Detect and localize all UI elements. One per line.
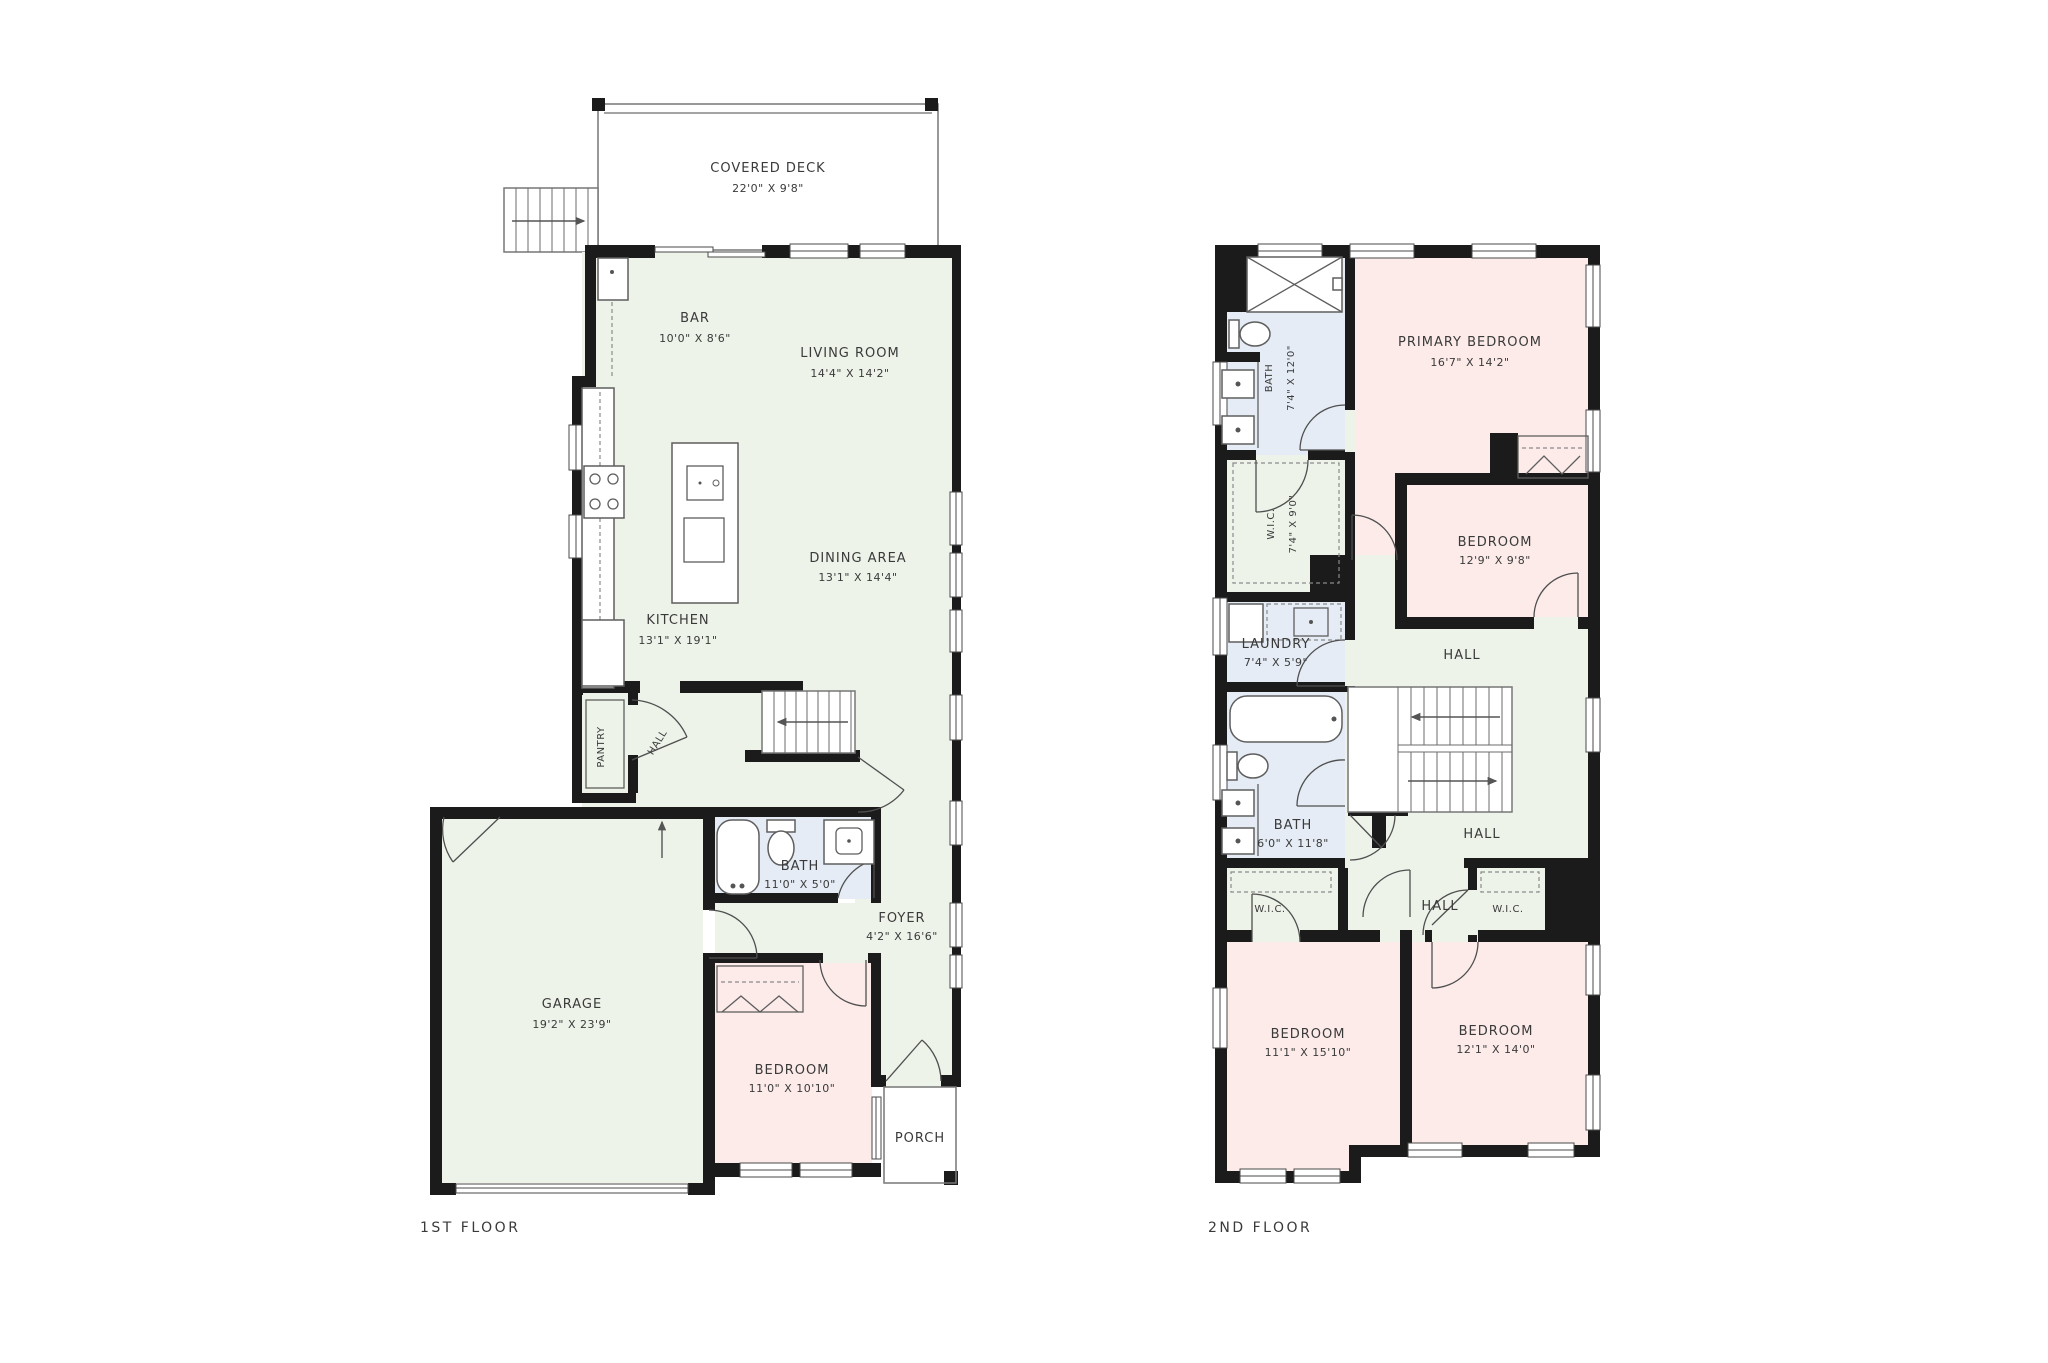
kitchen-dims: 13'1" X 19'1" xyxy=(638,634,717,647)
second-floor-plan: BATH 7'4" X 12'0" PRIMARY BEDROOM 16'7" … xyxy=(1208,244,1600,1236)
first-floor-plan: COVERED DECK 22'0" X 9'8" BAR 10'0" X 8'… xyxy=(420,98,962,1236)
bedroom3-label: BEDROOM xyxy=(1271,1027,1346,1042)
bedroom4-dims: 12'1" X 14'0" xyxy=(1456,1043,1535,1056)
first-floor-room-fills xyxy=(442,252,961,1183)
bedroom3-dims: 11'1" X 15'10" xyxy=(1265,1046,1352,1059)
bedroom2-dims: 12'9" X 9'8" xyxy=(1459,554,1531,567)
floorplan-canvas: COVERED DECK 22'0" X 9'8" BAR 10'0" X 8'… xyxy=(0,0,2048,1363)
bar-label: BAR xyxy=(680,311,710,326)
bar-dims: 10'0" X 8'6" xyxy=(659,332,731,345)
bedroom1-label: BEDROOM xyxy=(755,1063,830,1078)
hall-bath-dims: 6'0" X 11'8" xyxy=(1257,837,1329,850)
foyer-label: FOYER xyxy=(878,911,925,926)
pantry-label: PANTRY xyxy=(596,726,607,768)
bedroom4-label: BEDROOM xyxy=(1459,1024,1534,1039)
primary-bedroom-label: PRIMARY BEDROOM xyxy=(1398,335,1542,350)
laundry-label: LAUNDRY xyxy=(1242,637,1311,652)
hall-bottom-label: HALL xyxy=(1421,899,1458,914)
first-floor-caption: 1ST FLOOR xyxy=(420,1220,520,1236)
shower-icon xyxy=(1247,257,1342,312)
wic-left-label: W.I.C. xyxy=(1254,904,1285,915)
wic-right-label: W.I.C. xyxy=(1492,904,1523,915)
kitchen-label: KITCHEN xyxy=(646,613,709,628)
living-room-label: LIVING ROOM xyxy=(800,346,899,361)
porch-label: PORCH xyxy=(895,1131,945,1146)
bedroom1-dims: 11'0" X 10'10" xyxy=(749,1082,836,1095)
laundry-dims: 7'4" X 5'9" xyxy=(1244,656,1308,669)
kitchen-island xyxy=(672,443,738,603)
bedroom2-label: BEDROOM xyxy=(1458,535,1533,550)
living-room-dims: 14'4" X 14'2" xyxy=(810,367,889,380)
dining-area-label: DINING AREA xyxy=(809,551,906,566)
primary-bath-label: BATH xyxy=(1264,364,1275,393)
foyer-dims: 4'2" X 16'6" xyxy=(866,930,938,943)
wic-primary-label: W.I.C. xyxy=(1266,508,1277,539)
first-floor-stairs xyxy=(762,691,855,753)
covered-deck-label: COVERED DECK xyxy=(710,161,825,176)
hall-upper-label: HALL xyxy=(1443,648,1480,663)
covered-deck-dims: 22'0" X 9'8" xyxy=(732,182,804,195)
bath-label: BATH xyxy=(781,859,820,874)
primary-bedroom-dims: 16'7" X 14'2" xyxy=(1430,356,1509,369)
hall-lower-label: HALL xyxy=(1463,827,1500,842)
dining-area-dims: 13'1" X 14'4" xyxy=(818,571,897,584)
hall-bath-label: BATH xyxy=(1274,818,1313,833)
bath-dims: 11'0" X 5'0" xyxy=(764,878,836,891)
garage-label: GARAGE xyxy=(542,997,602,1012)
stove-icon xyxy=(584,466,624,518)
deck-stairs xyxy=(504,188,598,252)
second-floor-stairs xyxy=(1348,687,1512,812)
primary-bath-dims: 7'4" X 12'0" xyxy=(1286,345,1297,411)
second-floor-caption: 2ND FLOOR xyxy=(1208,1220,1312,1236)
wic-primary-dims: 7'4" X 9'0" xyxy=(1288,495,1299,554)
floorplan-svg: COVERED DECK 22'0" X 9'8" BAR 10'0" X 8'… xyxy=(0,0,2048,1363)
garage-dims: 19'2" X 23'9" xyxy=(532,1018,611,1031)
